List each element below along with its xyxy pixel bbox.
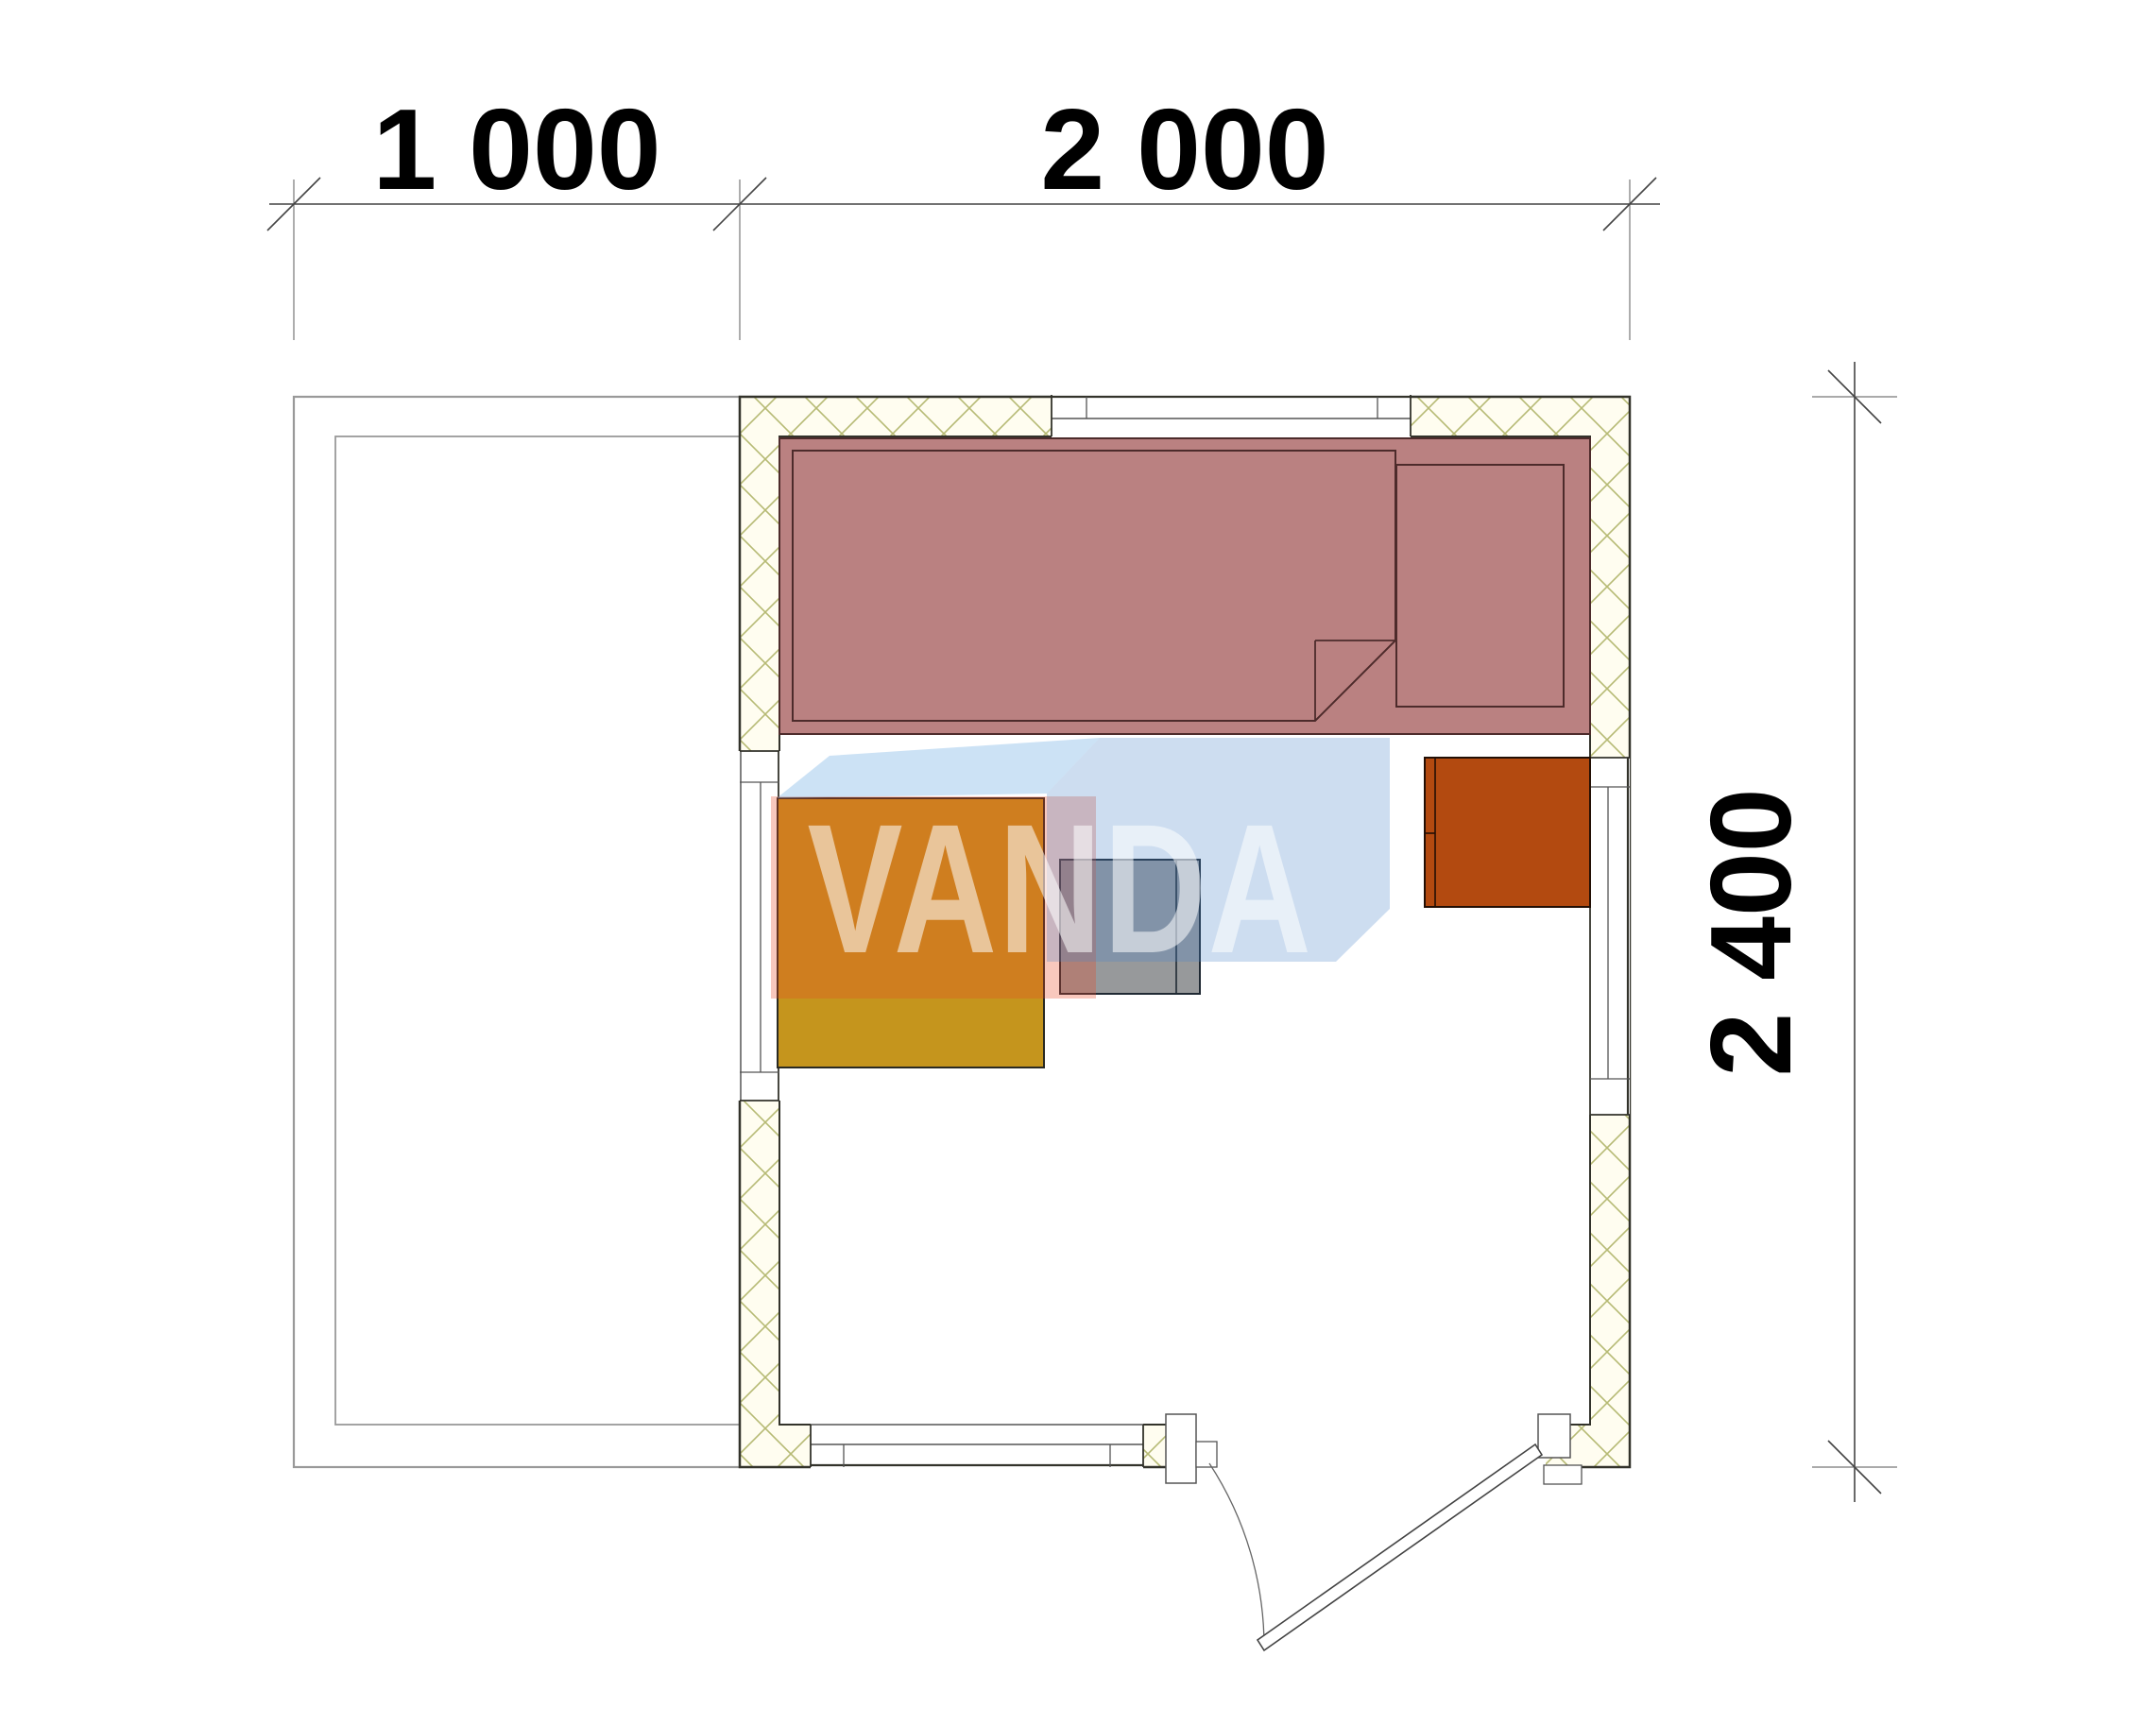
door-leaf bbox=[1258, 1444, 1542, 1650]
dim-label-terrace-width: 1 000 bbox=[372, 85, 660, 213]
door-swing-arc bbox=[1209, 1463, 1264, 1650]
floor-plan-page: VANDA 1 000 2 000 2 400 bbox=[0, 0, 2156, 1725]
window-top bbox=[1052, 393, 1411, 438]
dim-label-building-depth: 2 400 bbox=[1686, 788, 1815, 1076]
bed bbox=[779, 438, 1590, 734]
stove bbox=[1425, 758, 1590, 907]
door-jamb-right bbox=[1538, 1414, 1570, 1458]
window-right bbox=[1588, 758, 1630, 1115]
window-bottom bbox=[811, 1423, 1143, 1469]
floor-plan-drawing: VANDA 1 000 2 000 2 400 bbox=[0, 0, 2156, 1725]
dimension-right bbox=[1812, 362, 1897, 1502]
dim-label-building-width: 2 000 bbox=[1040, 85, 1328, 213]
vanda-watermark: VANDA bbox=[771, 738, 1390, 999]
watermark-text: VANDA bbox=[808, 786, 1313, 992]
entrance-door bbox=[1166, 1414, 1582, 1650]
door-opening bbox=[1196, 1419, 1546, 1472]
terrace-outline bbox=[294, 397, 740, 1467]
door-jamb-left bbox=[1166, 1414, 1196, 1483]
